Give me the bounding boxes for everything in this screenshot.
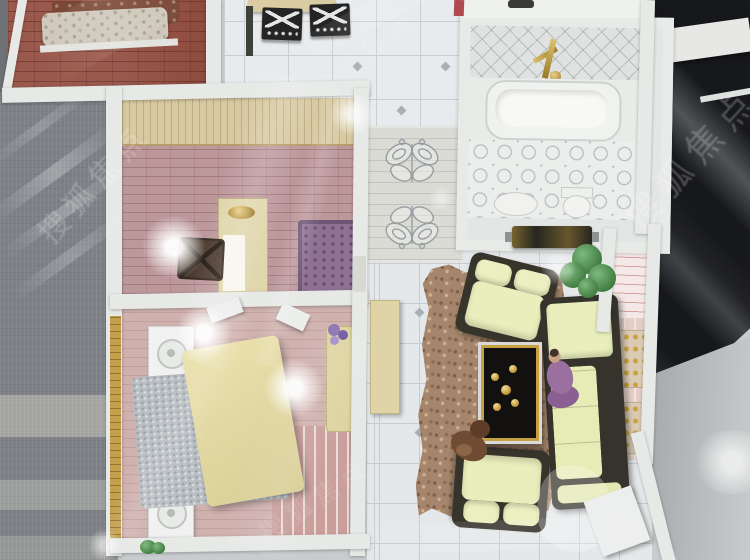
balcony-light-band: [0, 395, 118, 437]
hallway: [364, 128, 462, 260]
sink: [494, 192, 538, 217]
chair-seat-pattern: [266, 30, 298, 36]
tile-accent: [441, 62, 451, 72]
wood-slat-band: [122, 98, 354, 146]
potted-plant: [560, 244, 618, 304]
red-wall-strip: [454, 0, 465, 16]
bedroom-top-left: [8, 0, 216, 92]
balcony-light-band: [0, 536, 118, 560]
bedroom-middle: [122, 98, 354, 294]
wardrobe: [218, 198, 268, 296]
balcony-light-band: [0, 480, 118, 510]
wardrobe-label: [223, 235, 245, 291]
bedroom-chair: [177, 237, 225, 281]
dog-figurine: [448, 418, 494, 468]
tray-handle: [592, 232, 599, 242]
butterfly-tile-pattern: [380, 136, 444, 252]
tea-cup: [491, 373, 499, 381]
tv-cabinet: [370, 300, 400, 414]
tile-accent: [415, 308, 425, 318]
bathroom-floor: [468, 139, 639, 220]
teapot: [501, 385, 511, 395]
wall: [206, 0, 221, 92]
purple-flowers: [330, 336, 339, 345]
counter-faucet: [508, 0, 534, 8]
tile-accent: [353, 62, 363, 72]
balcony: [0, 84, 118, 560]
dog-head: [470, 420, 490, 438]
tea-cup: [493, 403, 501, 411]
gold-wall-trim: [110, 316, 121, 542]
door-opening: [353, 256, 366, 292]
master-bedroom: [122, 306, 354, 538]
toilet: [559, 187, 594, 218]
wardrobe-gold-handle: [228, 206, 255, 219]
model-photo: 搜狐焦点 搜狐焦点 搜狐焦点 搜狐焦点: [0, 0, 750, 560]
purple-flowers: [338, 330, 348, 340]
toilet-bowl: [563, 195, 591, 218]
tray-handle: [505, 232, 512, 242]
bathtub: [485, 80, 622, 142]
dining-chair: [261, 7, 302, 40]
chair-seat-pattern: [314, 26, 346, 32]
tea-cup: [511, 399, 519, 407]
kitchen-counter-edge: [246, 6, 253, 56]
tea-cup: [509, 365, 517, 373]
chair-back-pattern: [265, 10, 300, 28]
dog-patch: [456, 444, 472, 456]
armchair-pillow: [463, 499, 500, 523]
bathtub-basin: [495, 89, 608, 129]
dining-chair: [309, 3, 350, 36]
armchair-pillow: [503, 502, 540, 526]
chair-back-pattern: [313, 6, 348, 24]
tile-accent: [397, 106, 407, 116]
plant-foliage: [578, 278, 598, 298]
bathroom-counter: [462, 0, 648, 18]
small-plant: [152, 542, 165, 554]
